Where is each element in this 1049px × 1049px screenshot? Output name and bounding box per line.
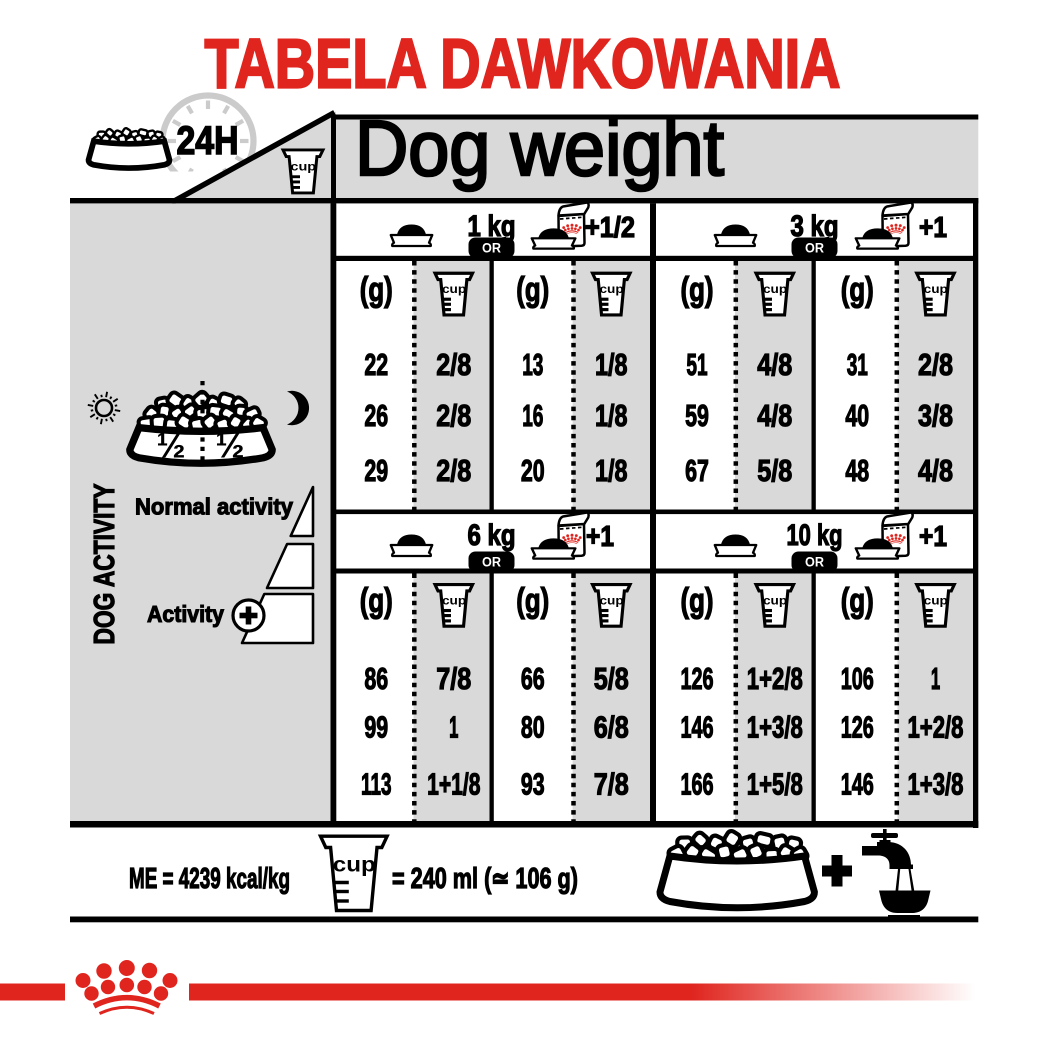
svg-text:67: 67	[685, 453, 709, 488]
svg-text:1: 1	[931, 661, 940, 696]
svg-text:(g): (g)	[360, 271, 393, 309]
svg-text:TABELA DAWKOWANIA: TABELA DAWKOWANIA	[205, 25, 841, 103]
svg-text:OR: OR	[482, 555, 501, 570]
svg-text:2/8: 2/8	[436, 398, 471, 433]
svg-text:2/8: 2/8	[436, 453, 471, 488]
svg-text:59: 59	[685, 398, 709, 433]
svg-text:OR: OR	[482, 241, 501, 256]
svg-text:5/8: 5/8	[757, 453, 792, 488]
svg-text:86: 86	[364, 661, 388, 696]
svg-text:22: 22	[364, 347, 388, 382]
svg-text:(g): (g)	[841, 582, 874, 620]
svg-text:29: 29	[364, 453, 388, 488]
svg-text:(g): (g)	[681, 271, 714, 309]
svg-text:93: 93	[521, 767, 545, 802]
svg-text:+1: +1	[919, 521, 947, 553]
svg-text:4/8: 4/8	[918, 453, 953, 488]
svg-text:1/8: 1/8	[595, 347, 628, 382]
svg-text:66: 66	[521, 661, 545, 696]
svg-text:OR: OR	[805, 555, 824, 570]
svg-text:20: 20	[521, 453, 545, 488]
svg-text:80: 80	[521, 710, 545, 745]
svg-text:1: 1	[449, 710, 458, 745]
svg-text:7/8: 7/8	[436, 661, 471, 696]
svg-text:166: 166	[680, 767, 713, 802]
svg-text:6 kg: 6 kg	[468, 519, 516, 552]
svg-text:7/8: 7/8	[594, 767, 629, 802]
svg-text:(g): (g)	[360, 582, 393, 620]
svg-text:146: 146	[680, 710, 713, 745]
svg-text:1+2/8: 1+2/8	[747, 661, 803, 696]
svg-text:(g): (g)	[516, 582, 549, 620]
svg-text:6/8: 6/8	[594, 710, 629, 745]
svg-text:2/8: 2/8	[436, 347, 471, 382]
svg-text:+1: +1	[919, 212, 947, 244]
svg-text:51: 51	[686, 347, 707, 382]
svg-text:Dog weight: Dog weight	[355, 104, 724, 192]
svg-text:DOG ACTIVITY: DOG ACTIVITY	[89, 484, 121, 645]
svg-text:= 240 ml (≃ 106 g): = 240 ml (≃ 106 g)	[392, 863, 578, 895]
svg-text:1/8: 1/8	[595, 453, 628, 488]
svg-text:½: ½	[156, 427, 185, 466]
svg-text:4/8: 4/8	[757, 347, 792, 382]
svg-text:126: 126	[841, 710, 874, 745]
svg-text:1+3/8: 1+3/8	[908, 767, 964, 802]
svg-text:113: 113	[361, 767, 392, 802]
svg-text:99: 99	[364, 710, 388, 745]
svg-text:13: 13	[522, 347, 543, 382]
svg-text:146: 146	[841, 767, 874, 802]
svg-text:4/8: 4/8	[757, 398, 792, 433]
svg-text:(g): (g)	[516, 271, 549, 309]
svg-text:1+3/8: 1+3/8	[747, 710, 803, 745]
svg-text:1+5/8: 1+5/8	[747, 767, 803, 802]
svg-text:1/8: 1/8	[595, 398, 628, 433]
svg-text:+1/2: +1/2	[585, 212, 635, 244]
svg-text:Normal activity: Normal activity	[135, 494, 293, 520]
svg-text:16: 16	[522, 398, 543, 433]
svg-text:5/8: 5/8	[594, 661, 629, 696]
svg-text:½: ½	[215, 427, 244, 466]
svg-text:106: 106	[841, 661, 874, 696]
svg-text:31: 31	[847, 347, 868, 382]
svg-text:+1: +1	[586, 521, 614, 553]
svg-text:24H: 24H	[177, 119, 239, 163]
svg-text:3/8: 3/8	[918, 398, 953, 433]
svg-text:(g): (g)	[841, 271, 874, 309]
svg-text:10 kg: 10 kg	[787, 519, 843, 552]
svg-text:Activity: Activity	[147, 601, 224, 627]
svg-text:(g): (g)	[681, 582, 714, 620]
svg-text:48: 48	[845, 453, 869, 488]
svg-text:OR: OR	[805, 241, 824, 256]
svg-text:ME = 4239 kcal/kg: ME = 4239 kcal/kg	[129, 863, 290, 895]
svg-text:26: 26	[364, 398, 388, 433]
svg-text:2/8: 2/8	[918, 347, 953, 382]
svg-text:126: 126	[680, 661, 713, 696]
svg-text:40: 40	[845, 398, 869, 433]
svg-text:1+1/8: 1+1/8	[427, 767, 480, 802]
svg-text:1+2/8: 1+2/8	[908, 710, 964, 745]
